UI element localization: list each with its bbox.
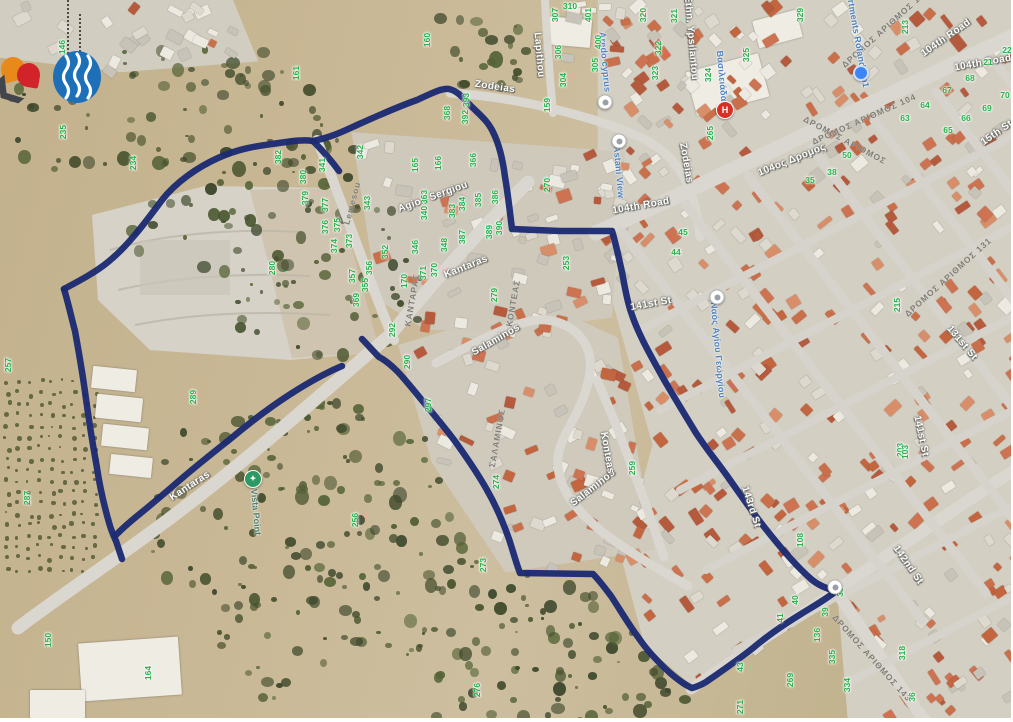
parcel-number: 235	[58, 125, 68, 139]
parcel-number: 161	[291, 66, 301, 80]
parcel-number: 320	[638, 8, 648, 22]
parcel-number: 65	[943, 125, 952, 135]
parcel-number: 346	[410, 240, 420, 254]
parcel-number: 136	[812, 628, 822, 642]
parcel-number: 392	[460, 110, 470, 124]
parcel-number: 280	[267, 261, 277, 275]
poi-dot-icon	[714, 294, 720, 300]
parcel-number: 276	[472, 683, 482, 697]
parcel-number: 389	[484, 225, 494, 239]
parcel-number: 103	[900, 445, 910, 459]
parcel-number: 265	[705, 126, 715, 140]
parcel-number: 401	[583, 8, 593, 22]
parcel-number: 366	[468, 153, 478, 167]
parcel-number: 289	[188, 390, 198, 404]
church-marker[interactable]	[710, 290, 725, 305]
parcel-number: 38	[827, 167, 836, 177]
parcel-number: 45	[678, 227, 687, 237]
parcel-number: 377	[320, 198, 330, 212]
parcel-number: 256	[350, 513, 360, 527]
parcel-number: 40	[790, 595, 800, 604]
hospital-marker[interactable]: H	[716, 101, 734, 119]
parcel-number: 380	[298, 170, 308, 184]
parcel-number: 348	[439, 238, 449, 252]
parcel-number: 64	[920, 100, 929, 110]
parcel-number: 363	[419, 190, 429, 204]
parcel-number: 375	[332, 218, 342, 232]
parcel-number: 165	[410, 158, 420, 172]
scan-edge	[0, 718, 1013, 722]
parcel-number: 257	[3, 358, 13, 372]
parcel-number: 352	[380, 245, 390, 259]
poi-dot-icon	[832, 584, 838, 590]
parcel-number: 259	[627, 461, 637, 475]
parcel-number: 269	[785, 673, 795, 687]
parcel-number: 342	[355, 145, 365, 159]
parcel-number: 305	[590, 58, 600, 72]
roads-and-boundary	[0, 0, 1013, 722]
parcel-number: 271	[735, 700, 745, 714]
parcel-number: 150	[43, 633, 53, 647]
parcel-number: 35	[805, 175, 814, 185]
parcel-number: 374	[329, 239, 339, 253]
junction-marker[interactable]	[828, 580, 843, 595]
parcel-number: 213	[900, 20, 910, 34]
parcel-number: 382	[273, 150, 283, 164]
parcel-number: 274	[491, 475, 501, 489]
water-board-limassol-logo	[52, 50, 102, 104]
parcel-number: 70	[1000, 90, 1009, 100]
parcel-number: 67	[942, 85, 951, 95]
site-boundary-segment	[64, 289, 122, 559]
parcel-number: 160	[422, 33, 432, 47]
parcel-number: 335	[827, 650, 837, 664]
parcel-number: 356	[364, 261, 374, 275]
parcel-number: 108	[795, 533, 805, 547]
parcel-number: 307	[550, 8, 560, 22]
parcel-number: 370	[429, 263, 439, 277]
parcel-number: 371	[418, 266, 428, 280]
parcel-number: 66	[961, 113, 970, 123]
parcel-number: 215	[892, 298, 902, 312]
parcel-number: 41	[775, 613, 785, 622]
parcel-number: 384	[457, 197, 467, 211]
parcel-number: 253	[561, 256, 571, 270]
parcel-number: 234	[128, 156, 138, 170]
parcel-number: 393	[461, 93, 471, 107]
site-boundary-segment	[115, 366, 342, 536]
parcel-number: 323	[650, 66, 660, 80]
parcel-number: 390	[494, 221, 504, 235]
parcel-number: 341	[317, 158, 327, 172]
parcel-number: 170	[399, 274, 409, 288]
parcel-number: 368	[442, 106, 452, 120]
parcel-number: 322	[653, 41, 663, 55]
parcel-number: 310	[563, 1, 577, 11]
parcel-number: 164	[143, 666, 153, 680]
parcel-number: 340	[419, 206, 429, 220]
parcel-number: 21	[983, 57, 992, 67]
astani-view-marker[interactable]	[612, 134, 627, 149]
parcel-number: 290	[402, 355, 412, 369]
parcel-number: 343	[362, 196, 372, 210]
parcel-number: 369	[351, 293, 361, 307]
parcel-number: 36	[907, 692, 917, 701]
aredo-cyprus-marker[interactable]	[598, 95, 613, 110]
parcel-number: 355	[360, 278, 370, 292]
parcel-number: 400	[593, 35, 603, 49]
map-canvas[interactable]: ZodeiasZodeiasLapithouAgiou SergiouEthn.…	[0, 0, 1013, 722]
parcel-number: 306	[553, 45, 563, 59]
parcel-number: 270	[542, 178, 552, 192]
parcel-number: 325	[741, 48, 751, 62]
parcel-number: 373	[344, 234, 354, 248]
parcel-number: 385	[473, 193, 483, 207]
poi-dot-icon	[602, 99, 608, 105]
poi-dot-icon	[616, 138, 622, 144]
parcel-number: 279	[489, 288, 499, 302]
parcel-number: 297	[423, 398, 433, 412]
parcel-number: 69	[982, 103, 991, 113]
parcel-number: 334	[842, 678, 852, 692]
parcel-number: 387	[457, 230, 467, 244]
parcel-number: 318	[897, 646, 907, 660]
parcel-number: 63	[900, 113, 909, 123]
parcel-number: 379	[300, 191, 310, 205]
parcel-number: 43	[735, 662, 745, 671]
parcel-number: 329	[795, 8, 805, 22]
parcel-number: 273	[478, 558, 488, 572]
business-marker[interactable]	[853, 65, 869, 81]
parcel-number: 324	[703, 68, 713, 82]
parcel-number: 39	[820, 607, 830, 616]
parcel-number: 321	[669, 9, 679, 23]
parcel-number: 383	[447, 204, 457, 218]
parcel-number: 376	[320, 220, 330, 234]
parcel-number: 50	[842, 150, 851, 160]
parcel-number: 386	[490, 190, 500, 204]
road	[622, 232, 922, 620]
parcel-number: 166	[433, 156, 443, 170]
parcel-number: 292	[387, 323, 397, 337]
parcel-number: 44	[671, 247, 680, 257]
parcel-number: 357	[347, 269, 357, 283]
parcel-number: 304	[558, 73, 568, 87]
vista-point-marker[interactable]: ✦	[244, 470, 262, 488]
parcel-number: 68	[965, 73, 974, 83]
parcel-number: 287	[22, 491, 32, 505]
parcel-number: 159	[542, 98, 552, 112]
